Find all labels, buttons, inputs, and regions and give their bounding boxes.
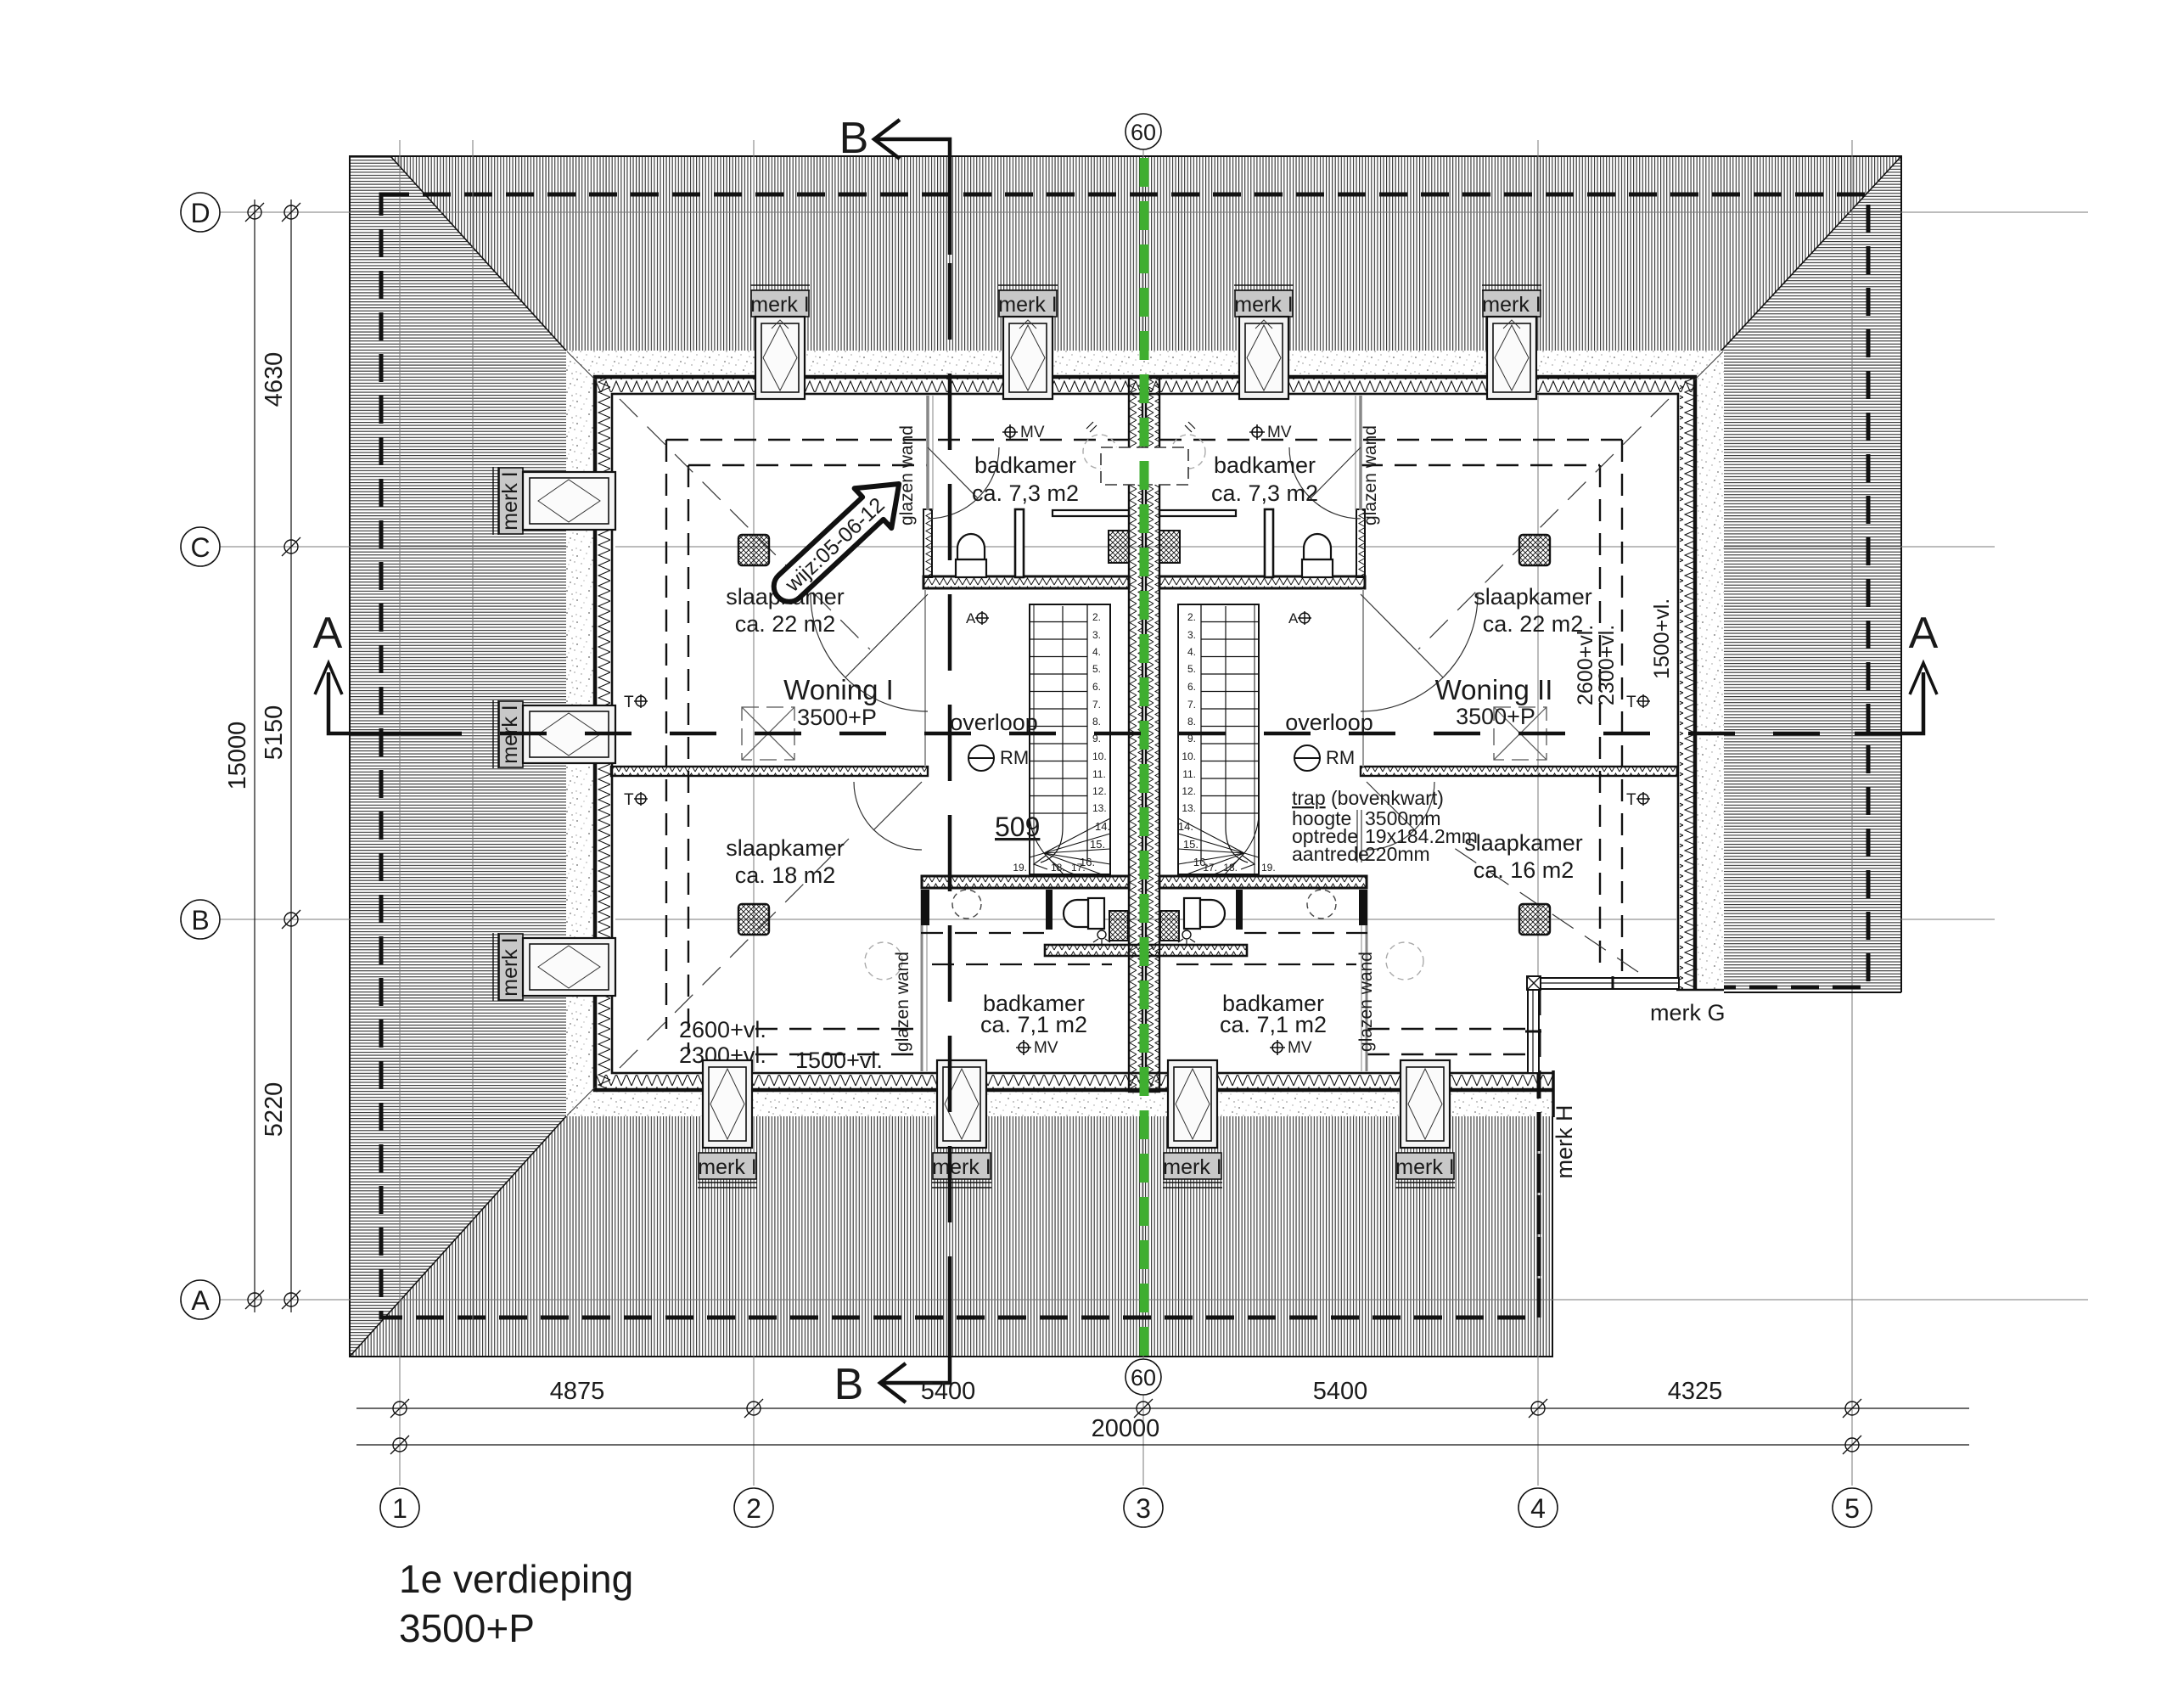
svg-text:4.: 4.: [1187, 646, 1196, 658]
svg-text:glazen wand: glazen wand: [893, 952, 912, 1052]
svg-text:B: B: [191, 905, 209, 935]
svg-text:19.: 19.: [1013, 862, 1027, 874]
svg-text:2.: 2.: [1092, 611, 1101, 623]
svg-text:glazen wand: glazen wand: [1361, 425, 1380, 525]
svg-text:13.: 13.: [1182, 802, 1196, 814]
svg-text:ca. 16 m2: ca. 16 m2: [1474, 857, 1575, 883]
svg-text:MV: MV: [1034, 1039, 1058, 1057]
svg-text:5: 5: [1844, 1493, 1860, 1524]
svg-text:2300+vl.: 2300+vl.: [1595, 625, 1619, 705]
svg-text:MV: MV: [1020, 424, 1045, 441]
svg-text:60: 60: [1131, 120, 1156, 145]
svg-text:T: T: [624, 694, 634, 711]
svg-text:2: 2: [746, 1493, 761, 1524]
svg-text:merk I: merk I: [1395, 1155, 1454, 1179]
svg-text:merk I: merk I: [698, 1155, 756, 1179]
svg-text:3: 3: [1136, 1493, 1151, 1524]
svg-text:RM: RM: [1326, 747, 1355, 768]
svg-text:3500+P: 3500+P: [797, 705, 877, 730]
svg-text:D: D: [190, 198, 210, 228]
svg-text:B: B: [834, 1360, 864, 1409]
svg-text:merk I: merk I: [932, 1155, 991, 1179]
svg-text:7.: 7.: [1187, 699, 1196, 711]
svg-text:A: A: [1909, 609, 1939, 658]
svg-text:4630: 4630: [261, 352, 288, 407]
svg-text:5400: 5400: [1313, 1378, 1368, 1405]
svg-text:6.: 6.: [1187, 681, 1196, 693]
svg-text:4325: 4325: [1668, 1378, 1723, 1405]
svg-text:slaapkamer: slaapkamer: [726, 835, 845, 861]
svg-text:overloop: overloop: [1285, 710, 1373, 735]
svg-text:3.: 3.: [1092, 629, 1101, 641]
svg-text:ca. 7,3 m2: ca. 7,3 m2: [1211, 480, 1318, 506]
svg-text:A: A: [966, 610, 976, 626]
svg-text:ca. 7,1 m2: ca. 7,1 m2: [980, 1012, 1087, 1037]
svg-text:17.: 17.: [1203, 862, 1217, 874]
svg-text:11.: 11.: [1182, 768, 1196, 780]
svg-text:B: B: [839, 114, 869, 163]
svg-text:20000: 20000: [1092, 1415, 1160, 1442]
svg-text:merk I: merk I: [1482, 293, 1541, 317]
svg-text:slaapkamer: slaapkamer: [1464, 830, 1583, 856]
svg-text:glazen wand: glazen wand: [1356, 952, 1376, 1052]
svg-text:glazen wand: glazen wand: [897, 425, 917, 525]
svg-text:merk I: merk I: [998, 293, 1057, 317]
svg-text:merk I: merk I: [498, 937, 522, 996]
svg-text:1500+vl.: 1500+vl.: [795, 1048, 883, 1073]
svg-text:ca. 22 m2: ca. 22 m2: [1483, 611, 1584, 637]
svg-text:5.: 5.: [1187, 663, 1196, 675]
svg-text:(bovenkwart): (bovenkwart): [1331, 787, 1444, 809]
svg-text:8.: 8.: [1092, 716, 1101, 728]
svg-text:MV: MV: [1288, 1039, 1312, 1057]
svg-text:RM: RM: [1000, 747, 1029, 768]
svg-text:merk H: merk H: [1552, 1105, 1577, 1179]
svg-text:18.: 18.: [1051, 862, 1065, 874]
svg-text:MV: MV: [1267, 424, 1292, 441]
svg-text:3500+P: 3500+P: [399, 1606, 535, 1650]
svg-text:12.: 12.: [1182, 785, 1196, 797]
svg-text:14.: 14.: [1178, 820, 1193, 833]
svg-text:13.: 13.: [1092, 802, 1107, 814]
svg-text:1: 1: [392, 1493, 407, 1524]
svg-text:ca. 18 m2: ca. 18 m2: [735, 862, 836, 888]
svg-text:17.: 17.: [1071, 862, 1086, 874]
svg-text:merk I: merk I: [1163, 1155, 1221, 1179]
svg-text:trap: trap: [1292, 787, 1326, 809]
svg-text:A: A: [191, 1285, 210, 1316]
svg-text:5.: 5.: [1092, 663, 1101, 675]
svg-text:18.: 18.: [1223, 862, 1238, 874]
svg-text:A: A: [1288, 610, 1299, 626]
svg-text:12.: 12.: [1092, 785, 1107, 797]
svg-text:5220: 5220: [261, 1082, 288, 1138]
svg-text:5150: 5150: [261, 705, 288, 761]
svg-text:merk I: merk I: [1234, 293, 1293, 317]
svg-text:10.: 10.: [1182, 750, 1196, 762]
svg-text:10.: 10.: [1092, 750, 1107, 762]
svg-text:60: 60: [1131, 1365, 1156, 1391]
svg-text:15000: 15000: [224, 722, 251, 790]
svg-text:1e verdieping: 1e verdieping: [399, 1557, 633, 1601]
svg-text:C: C: [190, 532, 210, 563]
svg-text:4875: 4875: [550, 1378, 605, 1405]
svg-text:T: T: [1626, 791, 1636, 809]
svg-text:2.: 2.: [1187, 611, 1196, 623]
svg-text:220mm: 220mm: [1365, 843, 1430, 865]
svg-text:15.: 15.: [1183, 838, 1198, 851]
svg-text:slaapkamer: slaapkamer: [1474, 584, 1592, 610]
svg-text:11.: 11.: [1092, 768, 1106, 780]
svg-text:5400: 5400: [921, 1378, 976, 1405]
svg-text:Woning II: Woning II: [1435, 674, 1553, 705]
svg-text:A: A: [313, 609, 343, 658]
svg-text:badkamer: badkamer: [1214, 452, 1316, 478]
svg-text:8.: 8.: [1187, 716, 1196, 728]
svg-text:merk G: merk G: [1650, 1000, 1726, 1025]
svg-text:509: 509: [995, 812, 1040, 842]
svg-text:6.: 6.: [1092, 681, 1101, 693]
svg-text:ca. 7,3 m2: ca. 7,3 m2: [972, 480, 1079, 506]
svg-text:merk I: merk I: [498, 471, 522, 530]
svg-text:4: 4: [1530, 1493, 1546, 1524]
svg-text:3500+P: 3500+P: [1456, 704, 1535, 729]
svg-text:7.: 7.: [1092, 699, 1101, 711]
svg-text:T: T: [1626, 694, 1636, 711]
svg-text:merk I: merk I: [750, 293, 809, 317]
svg-text:badkamer: badkamer: [974, 452, 1076, 478]
svg-text:overloop: overloop: [950, 710, 1038, 735]
svg-text:ca. 22 m2: ca. 22 m2: [735, 611, 836, 637]
svg-text:T: T: [624, 791, 634, 809]
svg-text:Woning I: Woning I: [783, 674, 894, 705]
svg-text:1500+vl.: 1500+vl.: [1650, 598, 1674, 679]
svg-text:2600+vl.: 2600+vl.: [679, 1017, 766, 1042]
svg-text:15.: 15.: [1090, 838, 1105, 851]
svg-text:19.: 19.: [1261, 862, 1276, 874]
svg-text:3.: 3.: [1187, 629, 1196, 641]
svg-text:ca. 7,1 m2: ca. 7,1 m2: [1220, 1012, 1327, 1037]
svg-text:2600+vl.: 2600+vl.: [1574, 625, 1597, 705]
svg-text:14.: 14.: [1095, 820, 1110, 833]
svg-text:4.: 4.: [1092, 646, 1101, 658]
